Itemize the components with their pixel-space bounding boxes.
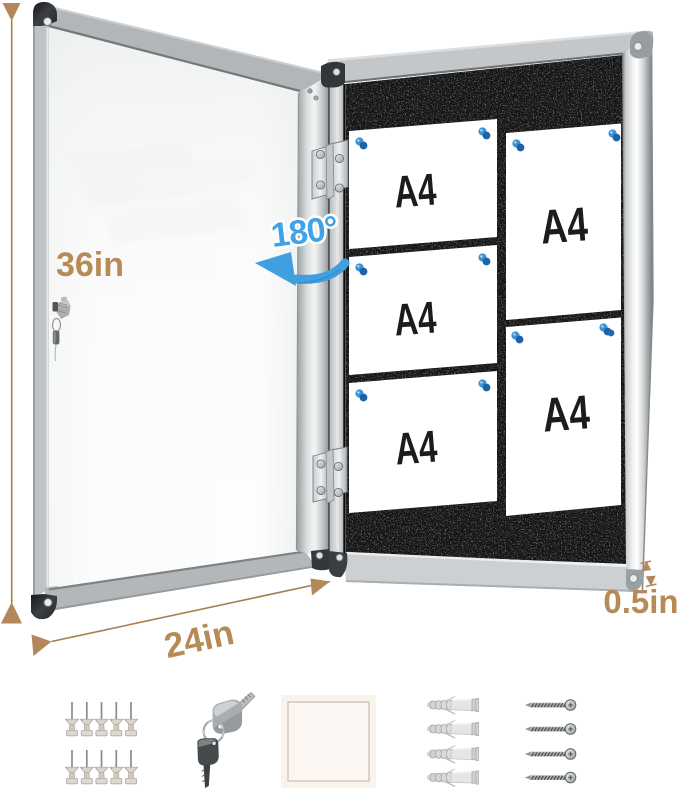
svg-text:A4: A4 [392,291,438,345]
svg-text:180°: 180° [269,209,340,255]
svg-text:A4: A4 [539,198,590,255]
svg-text:A4: A4 [393,420,439,474]
svg-text:A4: A4 [541,386,592,443]
svg-text:0.5in: 0.5in [603,583,678,620]
svg-text:A4: A4 [392,163,438,217]
svg-text:36in: 36in [56,246,124,284]
